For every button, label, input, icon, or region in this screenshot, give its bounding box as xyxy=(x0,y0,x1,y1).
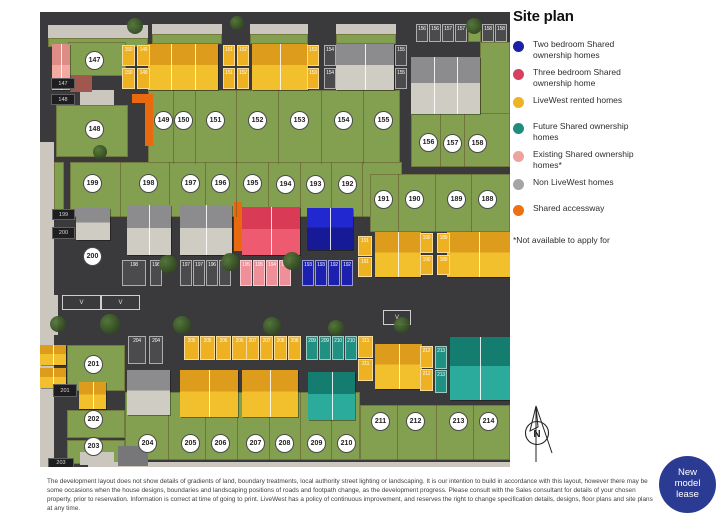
plot-boundary xyxy=(473,405,474,460)
parking-space-label: 198 xyxy=(130,263,138,268)
plot-plate-199: 199 xyxy=(52,209,75,220)
building-two xyxy=(307,208,353,250)
legend-item-label: Existing Shared ownership homes* xyxy=(533,149,645,171)
building-divider xyxy=(195,44,196,90)
plot-number-206: 206 xyxy=(211,434,230,453)
parking-space-label: 151 xyxy=(225,48,233,53)
parking-space-label: 197 xyxy=(195,263,203,268)
parking-space: 206 xyxy=(216,336,231,360)
parking-space-label: 192 xyxy=(330,263,338,268)
plot-boundary xyxy=(471,174,472,232)
building-divider xyxy=(457,57,458,114)
parking-space: 205 xyxy=(200,336,215,360)
parking-space-label: 195 xyxy=(255,263,263,268)
building-rented xyxy=(148,44,218,90)
parking-space: 197 xyxy=(193,260,205,286)
parking-space-label: 213 xyxy=(437,373,445,378)
parking-space: 190 xyxy=(420,255,433,275)
building-rented xyxy=(375,344,422,389)
parking-space: 154 xyxy=(324,68,336,89)
building-rented xyxy=(40,345,66,365)
parking-space: 195 xyxy=(240,260,252,286)
plot-number-212: 212 xyxy=(406,412,425,431)
parking-space: 153 xyxy=(307,45,319,66)
parking-space-label: 189 xyxy=(440,258,448,263)
parking-space: 193 xyxy=(302,260,314,286)
plot-plate-200: 200 xyxy=(52,227,75,239)
plot-number-157: 157 xyxy=(443,134,462,153)
tree-icon xyxy=(127,18,143,34)
parking-space-label: 194 xyxy=(268,263,276,268)
parking-space: 210 xyxy=(345,336,357,360)
plot-boundary xyxy=(173,90,174,164)
parking-space-label: 152 xyxy=(239,71,247,76)
parking-space-label: 189 xyxy=(440,236,448,241)
parking-space-label: 205 xyxy=(204,339,212,344)
parking-space-label: 212 xyxy=(423,372,431,377)
parking-space-label: 209 xyxy=(308,339,316,344)
legend-item: Existing Shared ownership homes* xyxy=(513,149,713,171)
building-non xyxy=(336,44,394,90)
tree-icon xyxy=(93,145,107,159)
accessway xyxy=(145,94,153,146)
parking-space: 193 xyxy=(315,260,327,286)
parking-space-label: 204 xyxy=(152,339,160,344)
parking-space: 195 xyxy=(253,260,265,286)
parking-space: 213 xyxy=(435,346,447,369)
tree-icon xyxy=(221,253,239,271)
parking-space-label: 207 xyxy=(249,339,257,344)
plot-number-189: 189 xyxy=(447,190,466,209)
legend: Site plan Two bedroom Shared ownership h… xyxy=(513,8,713,245)
plot-number-193: 193 xyxy=(306,175,325,194)
plot-number-214: 214 xyxy=(479,412,498,431)
visitor-parking-space: V xyxy=(101,295,140,310)
parking-space-label: 156 xyxy=(431,27,439,32)
building-rented xyxy=(79,382,106,409)
legend-item-label: Non LiveWest homes xyxy=(533,177,614,188)
legend-footnote: *Not available to apply for xyxy=(513,235,713,245)
plot-boundary xyxy=(362,162,363,217)
plot-number-204: 204 xyxy=(138,434,157,453)
parking-space-label: 156 xyxy=(418,27,426,32)
parking-space-label: 213 xyxy=(437,349,445,354)
plot-number-198: 198 xyxy=(139,174,158,193)
parking-space: 189 xyxy=(437,233,450,253)
parking-space-label: 210 xyxy=(334,339,342,344)
plot-number-202: 202 xyxy=(84,410,103,429)
plot-boundary xyxy=(300,392,301,460)
legend-item-label: Shared accessway xyxy=(533,203,604,214)
parking-space: 212 xyxy=(420,346,433,368)
parking-space: 208 xyxy=(288,336,301,360)
parking-space: 155 xyxy=(395,68,407,89)
parking-space: 204 xyxy=(128,336,146,364)
tree-icon xyxy=(466,18,482,34)
building-divider xyxy=(270,370,271,417)
tree-icon xyxy=(328,320,344,336)
parking-space: 158 xyxy=(482,24,494,42)
plot-boundary xyxy=(321,90,322,164)
building-rented xyxy=(252,44,308,90)
plot-number-149: 149 xyxy=(154,111,173,130)
building-divider xyxy=(93,382,94,409)
plot-number-207: 207 xyxy=(246,434,265,453)
parking-space-label: 190 xyxy=(423,236,431,241)
plot-number-190: 190 xyxy=(405,190,424,209)
plot-number-205: 205 xyxy=(181,434,200,453)
plot-number-197: 197 xyxy=(181,174,200,193)
legend-color-dot xyxy=(513,41,524,52)
parking-space-label: 150 xyxy=(125,71,133,76)
plot-number-188: 188 xyxy=(478,190,497,209)
parking-space-label: 210 xyxy=(347,339,355,344)
legend-item-label: Two bedroom Shared ownership homes xyxy=(533,39,645,61)
parking-space-label: 158 xyxy=(484,27,492,32)
sidewalk xyxy=(152,24,222,34)
parking-space: 208 xyxy=(274,336,287,360)
building-divider xyxy=(209,370,210,417)
plot-number-156: 156 xyxy=(419,133,438,152)
plot-boundary xyxy=(236,162,237,217)
grass-verge xyxy=(152,34,222,44)
visitor-parking-space: V xyxy=(62,295,101,310)
plot-boundary xyxy=(435,174,436,232)
plot-plate-147: 147 xyxy=(51,78,75,89)
parking-space-label: 205 xyxy=(188,339,196,344)
building-three xyxy=(242,207,300,255)
parking-space: 206 xyxy=(232,336,247,360)
parking-space-label: 212 xyxy=(423,349,431,354)
parking-space-label: 152 xyxy=(239,48,247,53)
legend-item: Non LiveWest homes xyxy=(513,177,713,197)
parking-space: 150 xyxy=(122,45,135,66)
legend-item: Future Shared ownership homes xyxy=(513,121,713,143)
disclaimer-text: The development layout does not show det… xyxy=(47,477,659,513)
grass-verge xyxy=(54,162,64,212)
parking-space-label: 193 xyxy=(304,263,312,268)
plot-boundary xyxy=(436,405,437,460)
legend-item-label: LiveWest rented homes xyxy=(533,95,622,106)
parking-space-label: 157 xyxy=(444,27,452,32)
legend-color-dot xyxy=(513,97,524,108)
building-non xyxy=(411,57,480,114)
plot-number-152: 152 xyxy=(248,111,267,130)
tree-icon xyxy=(283,252,301,270)
plot-number-211: 211 xyxy=(371,412,390,431)
plot-boundary xyxy=(464,112,465,167)
plot-number-153: 153 xyxy=(290,111,309,130)
tree-icon xyxy=(159,255,177,273)
building-divider xyxy=(434,57,435,114)
parking-space-label: 150 xyxy=(125,48,133,53)
parking-space-label: 155 xyxy=(397,48,405,53)
plot-number-158: 158 xyxy=(468,134,487,153)
plot-number-191: 191 xyxy=(374,190,393,209)
parking-space-label: 191 xyxy=(361,260,369,265)
legend-color-dot xyxy=(513,123,524,134)
grass-edge xyxy=(480,42,510,114)
parking-space: 153 xyxy=(307,68,319,89)
parking-space: 158 xyxy=(495,24,507,42)
plot-number-151: 151 xyxy=(206,111,225,130)
parking-space-label: 211 xyxy=(362,339,369,344)
plot-number-155: 155 xyxy=(374,111,393,130)
building-rented xyxy=(447,232,510,277)
plot-number-192: 192 xyxy=(338,175,357,194)
parking-space: 155 xyxy=(395,45,407,66)
legend-color-dot xyxy=(513,69,524,80)
parking-space: 149 xyxy=(137,68,150,89)
new-model-lease-badge: New model lease xyxy=(659,456,716,513)
building-divider xyxy=(479,232,480,277)
parking-space-label: 206 xyxy=(220,339,228,344)
plot-number-147: 147 xyxy=(85,51,104,70)
legend-item: Three bedroom Shared ownership home xyxy=(513,67,713,89)
plot-boundary xyxy=(236,90,237,164)
parking-space: 190 xyxy=(420,233,433,253)
parking-space: 211 xyxy=(358,336,373,358)
parking-space: 149 xyxy=(137,45,150,66)
parking-space: 204 xyxy=(149,336,163,364)
plot-number-195: 195 xyxy=(243,174,262,193)
legend-color-dot xyxy=(513,151,524,162)
legend-item: Shared accessway xyxy=(513,203,713,223)
legend-item: Two bedroom Shared ownership homes xyxy=(513,39,713,61)
building-divider xyxy=(206,205,207,255)
plot-boundary xyxy=(440,112,441,167)
plot-number-213: 213 xyxy=(449,412,468,431)
tree-icon xyxy=(230,16,244,30)
parking-space: 152 xyxy=(237,45,249,66)
plot-plate-203: 203 xyxy=(48,458,74,467)
parking-space: 196 xyxy=(206,260,218,286)
parking-space-label: 149 xyxy=(140,71,148,76)
parking-space-label: 204 xyxy=(133,339,141,344)
parking-space-label: 196 xyxy=(208,263,216,268)
parking-space-label: 157 xyxy=(457,27,465,32)
parking-space-label: 149 xyxy=(140,48,148,53)
legend-color-dot xyxy=(513,205,524,216)
building-divider xyxy=(53,345,54,365)
parking-space-label: 153 xyxy=(309,71,317,76)
building-divider xyxy=(330,208,331,250)
building-divider xyxy=(480,337,481,400)
building-divider xyxy=(399,344,400,389)
badge-line: lease xyxy=(676,490,699,501)
plot-plate-201: 201 xyxy=(53,384,77,397)
site-plan-map: 1501501491491511511521521531531541541551… xyxy=(40,12,510,467)
compass-icon: N xyxy=(516,400,560,468)
building-future xyxy=(308,372,355,420)
parking-space: 191 xyxy=(358,236,372,256)
parking-space: 152 xyxy=(237,68,249,89)
parking-space-label: 191 xyxy=(361,239,369,244)
parking-space: 213 xyxy=(435,370,447,393)
parking-space: 198 xyxy=(122,260,146,286)
parking-space-label: 211 xyxy=(362,362,369,367)
parking-space-label: 158 xyxy=(497,27,505,32)
parking-space-label: 195 xyxy=(242,263,250,268)
grass-verge xyxy=(336,34,396,44)
plot-number-154: 154 xyxy=(334,111,353,130)
parking-space-label: 153 xyxy=(309,48,317,53)
building-divider xyxy=(171,44,172,90)
parking-space: 207 xyxy=(260,336,273,360)
building-future xyxy=(450,337,510,400)
plot-boundary xyxy=(363,90,364,164)
plot-boundary xyxy=(195,90,196,164)
legend-color-dot xyxy=(513,179,524,190)
parking-space: 209 xyxy=(306,336,318,360)
building-divider xyxy=(398,232,399,277)
parking-space: 150 xyxy=(122,68,135,89)
plot-number-150: 150 xyxy=(174,111,193,130)
building-non xyxy=(127,205,171,255)
legend-items: Two bedroom Shared ownership homesThree … xyxy=(513,39,713,223)
legend-item-label: Future Shared ownership homes xyxy=(533,121,645,143)
parking-space: 192 xyxy=(328,260,340,286)
sidewalk xyxy=(88,462,510,467)
plot-number-196: 196 xyxy=(211,174,230,193)
legend-item-label: Three bedroom Shared ownership home xyxy=(533,67,645,89)
parking-space-label: 208 xyxy=(277,339,285,344)
plot-boundary xyxy=(398,174,399,232)
parking-space-label: 209 xyxy=(321,339,329,344)
building-rented xyxy=(242,370,298,417)
building-divider xyxy=(271,207,272,255)
parking-space: 192 xyxy=(341,260,353,286)
parking-space: 209 xyxy=(319,336,331,360)
tree-icon xyxy=(50,316,66,332)
parking-space-label: 151 xyxy=(225,71,233,76)
parking-space: 151 xyxy=(223,68,235,89)
parking-space: 191 xyxy=(358,257,372,277)
plot-number-209: 209 xyxy=(307,434,326,453)
legend-item: LiveWest rented homes xyxy=(513,95,713,115)
plot-number-148: 148 xyxy=(85,120,104,139)
plot-boundary xyxy=(120,162,121,217)
parking-space: 189 xyxy=(437,255,450,275)
plot-number-210: 210 xyxy=(337,434,356,453)
parking-space: 151 xyxy=(223,45,235,66)
parking-space-label: 192 xyxy=(343,263,351,268)
building-non xyxy=(180,205,232,255)
plot-number-203: 203 xyxy=(84,437,103,456)
building-rented xyxy=(180,370,238,417)
parking-space: 207 xyxy=(246,336,259,360)
parking-space-label: 206 xyxy=(236,339,244,344)
parking-space-label: 154 xyxy=(326,48,334,53)
parking-space-label: 193 xyxy=(317,263,325,268)
parking-space: 156 xyxy=(429,24,441,42)
parking-space-label: 197 xyxy=(182,263,190,268)
sidewalk xyxy=(250,24,308,34)
parking-space-label: 207 xyxy=(263,339,271,344)
parking-space-label: 155 xyxy=(397,71,405,76)
tree-icon xyxy=(263,317,281,335)
parking-space-label: 154 xyxy=(326,71,334,76)
parking-space: 197 xyxy=(180,260,192,286)
parking-space-label: 190 xyxy=(423,258,431,263)
tree-icon xyxy=(394,317,410,333)
building-divider xyxy=(365,44,366,90)
plot-boundary xyxy=(300,162,301,217)
parking-space: 156 xyxy=(416,24,428,42)
sidewalk xyxy=(336,24,396,34)
building-non xyxy=(76,208,110,240)
plot-number-194: 194 xyxy=(276,175,295,194)
grass-verge xyxy=(250,34,308,44)
tree-icon xyxy=(100,314,120,334)
parking-space: 212 xyxy=(420,369,433,391)
parking-space: 157 xyxy=(442,24,454,42)
plot-boundary xyxy=(278,90,279,164)
parking-space: 194 xyxy=(266,260,278,286)
building-non xyxy=(127,370,170,415)
plot-number-199: 199 xyxy=(83,174,102,193)
parking-space: 154 xyxy=(324,45,336,66)
building-rented xyxy=(375,232,421,277)
building-divider xyxy=(332,372,333,420)
parking-space: 210 xyxy=(332,336,344,360)
plot-number-208: 208 xyxy=(275,434,294,453)
plot-plate-148: 148 xyxy=(51,94,75,105)
parking-space-label: 208 xyxy=(291,339,299,344)
building-divider xyxy=(280,44,281,90)
building-divider xyxy=(149,205,150,255)
compass-north-label: N xyxy=(533,429,540,440)
parking-space: 205 xyxy=(184,336,199,360)
page-title: Site plan xyxy=(513,8,713,25)
tree-icon xyxy=(173,316,191,334)
plot-boundary xyxy=(397,405,398,460)
plot-number-201: 201 xyxy=(84,355,103,374)
parking-space: 211 xyxy=(358,359,373,381)
plot-number-200: 200 xyxy=(83,247,102,266)
